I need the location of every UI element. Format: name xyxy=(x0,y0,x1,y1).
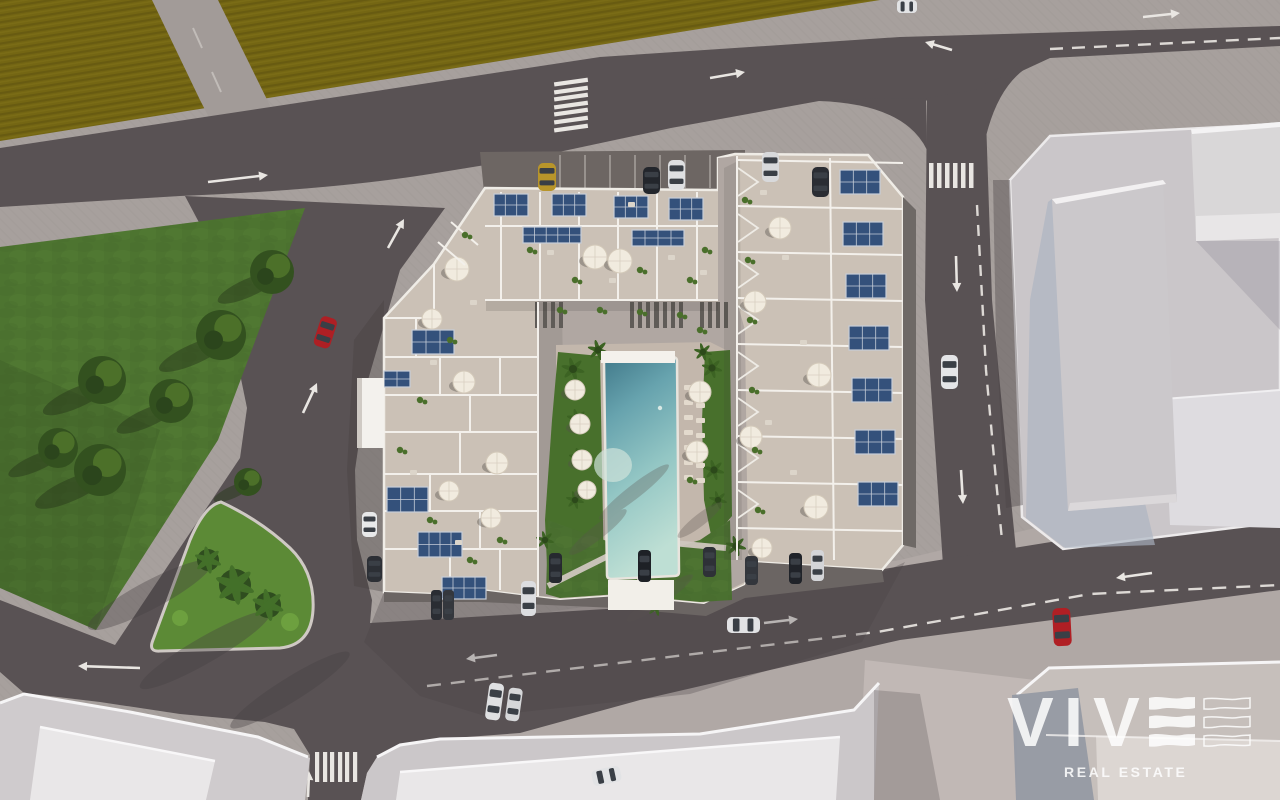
svg-text:REAL ESTATE: REAL ESTATE xyxy=(1064,764,1188,780)
svg-text:VIV: VIV xyxy=(1007,683,1150,761)
